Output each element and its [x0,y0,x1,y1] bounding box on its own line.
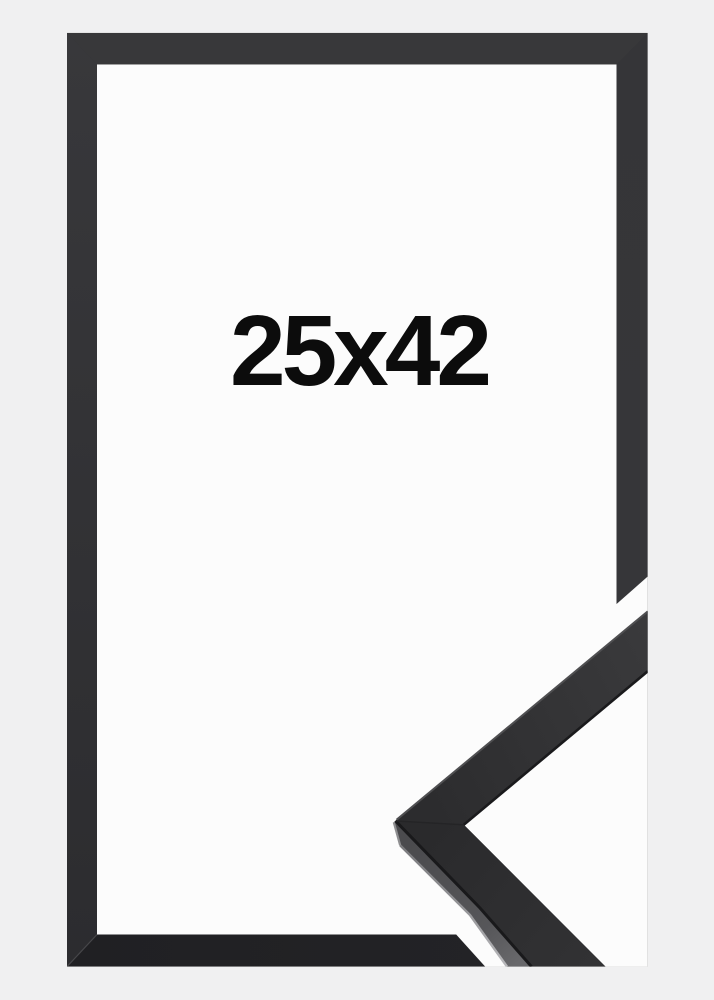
svg-text:25x42: 25x42 [230,295,488,407]
